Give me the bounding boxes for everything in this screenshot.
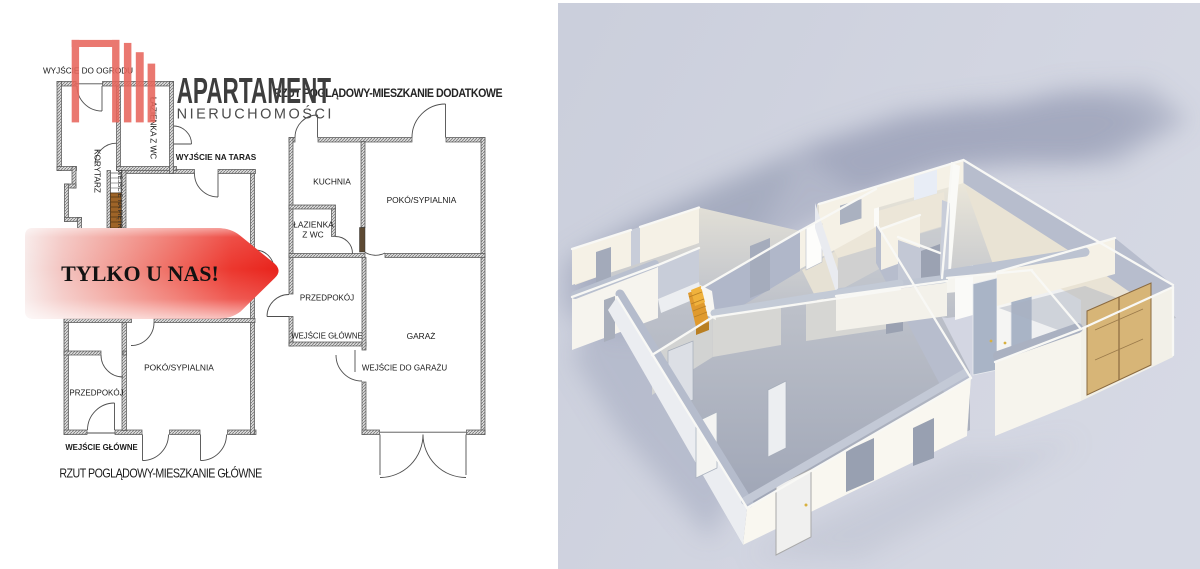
svg-text:WEJŚCIE DO GARAŻU: WEJŚCIE DO GARAŻU [362,364,448,373]
svg-text:PRZEDPOKÓJ: PRZEDPOKÓJ [69,389,123,398]
svg-text:WEJŚCIE NA PIĘTRO: WEJŚCIE NA PIĘTRO [116,170,125,233]
svg-text:WEJŚCIE GŁÓWNE: WEJŚCIE GŁÓWNE [65,443,137,452]
svg-text:POKÓ/SYPIALNIA: POKÓ/SYPIALNIA [387,195,457,205]
svg-text:RZUT POGLĄDOWY-MIESZKANIE GŁÓW: RZUT POGLĄDOWY-MIESZKANIE GŁÓWNE [59,467,262,481]
svg-text:KUCHNIA: KUCHNIA [313,177,351,187]
svg-text:WYJŚCIE NA TARAS: WYJŚCIE NA TARAS [176,151,257,162]
svg-text:APARTAMENT: APARTAMENT [177,72,332,112]
svg-text:NIERUCHOMOŚCI: NIERUCHOMOŚCI [177,105,334,123]
svg-text:ŁAZIENKA: ŁAZIENKA [293,220,334,230]
svg-text:Z WC: Z WC [302,230,323,240]
svg-text:WYJŚCIE DO OGRODU: WYJŚCIE DO OGRODU [43,65,133,76]
svg-text:PRZEDPOKÓJ: PRZEDPOKÓJ [300,294,354,303]
svg-text:WEJŚCIE GŁÓWNE: WEJŚCIE GŁÓWNE [291,332,362,341]
svg-text:GARAŻ: GARAŻ [407,331,436,341]
svg-text:POKÓ/SYPIALNIA: POKÓ/SYPIALNIA [144,363,214,373]
svg-text:KORYTARZ: KORYTARZ [93,149,102,193]
svg-text:TYLKO U NAS!: TYLKO U NAS! [61,261,219,286]
